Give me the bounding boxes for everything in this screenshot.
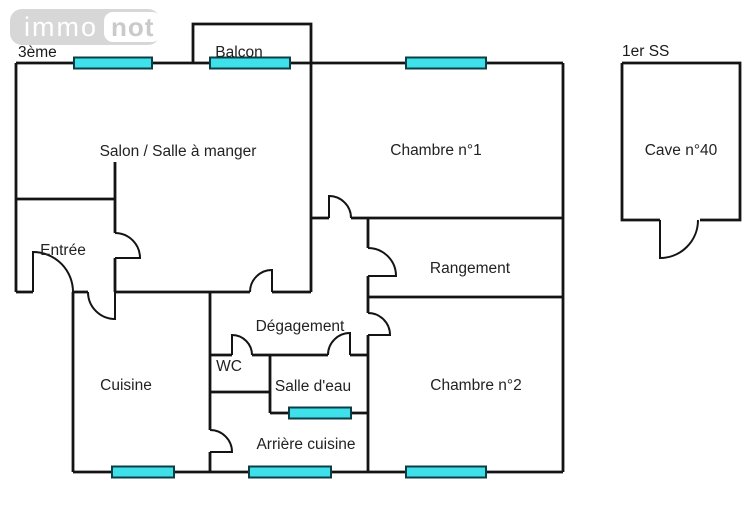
room-label-wc: WC [216, 358, 242, 375]
room-label-arriere-cuisine: Arrière cuisine [256, 436, 355, 453]
window-chambre1 [406, 58, 486, 69]
floorplan-drawing: 3ème 1er SS Balcon Salon / Salle à mange… [0, 0, 750, 505]
window-chambre2 [406, 467, 486, 478]
room-label-cave: Cave n°40 [645, 142, 718, 159]
room-label-entree: Entrée [40, 242, 86, 259]
window-salle-deau [289, 408, 351, 419]
room-label-chambre2: Chambre n°2 [430, 377, 522, 394]
room-label-rangement: Rangement [430, 260, 511, 277]
room-label-chambre1: Chambre n°1 [390, 142, 482, 159]
window-salon [74, 58, 152, 69]
room-label-salle-deau: Salle d'eau [275, 378, 351, 395]
window-arriere-cuisine [249, 467, 331, 478]
window-cuisine [112, 467, 174, 478]
room-label-salon: Salon / Salle à manger [100, 143, 257, 160]
room-label-cuisine: Cuisine [100, 377, 152, 394]
floor-label-3eme: 3ème [18, 44, 57, 61]
room-label-balcon: Balcon [215, 44, 262, 61]
floorplan-page: { "logo": { "part1": "immo", "part2": "n… [0, 0, 750, 505]
floor-label-1er-ss: 1er SS [622, 43, 669, 60]
room-label-degagement: Dégagement [256, 318, 345, 335]
